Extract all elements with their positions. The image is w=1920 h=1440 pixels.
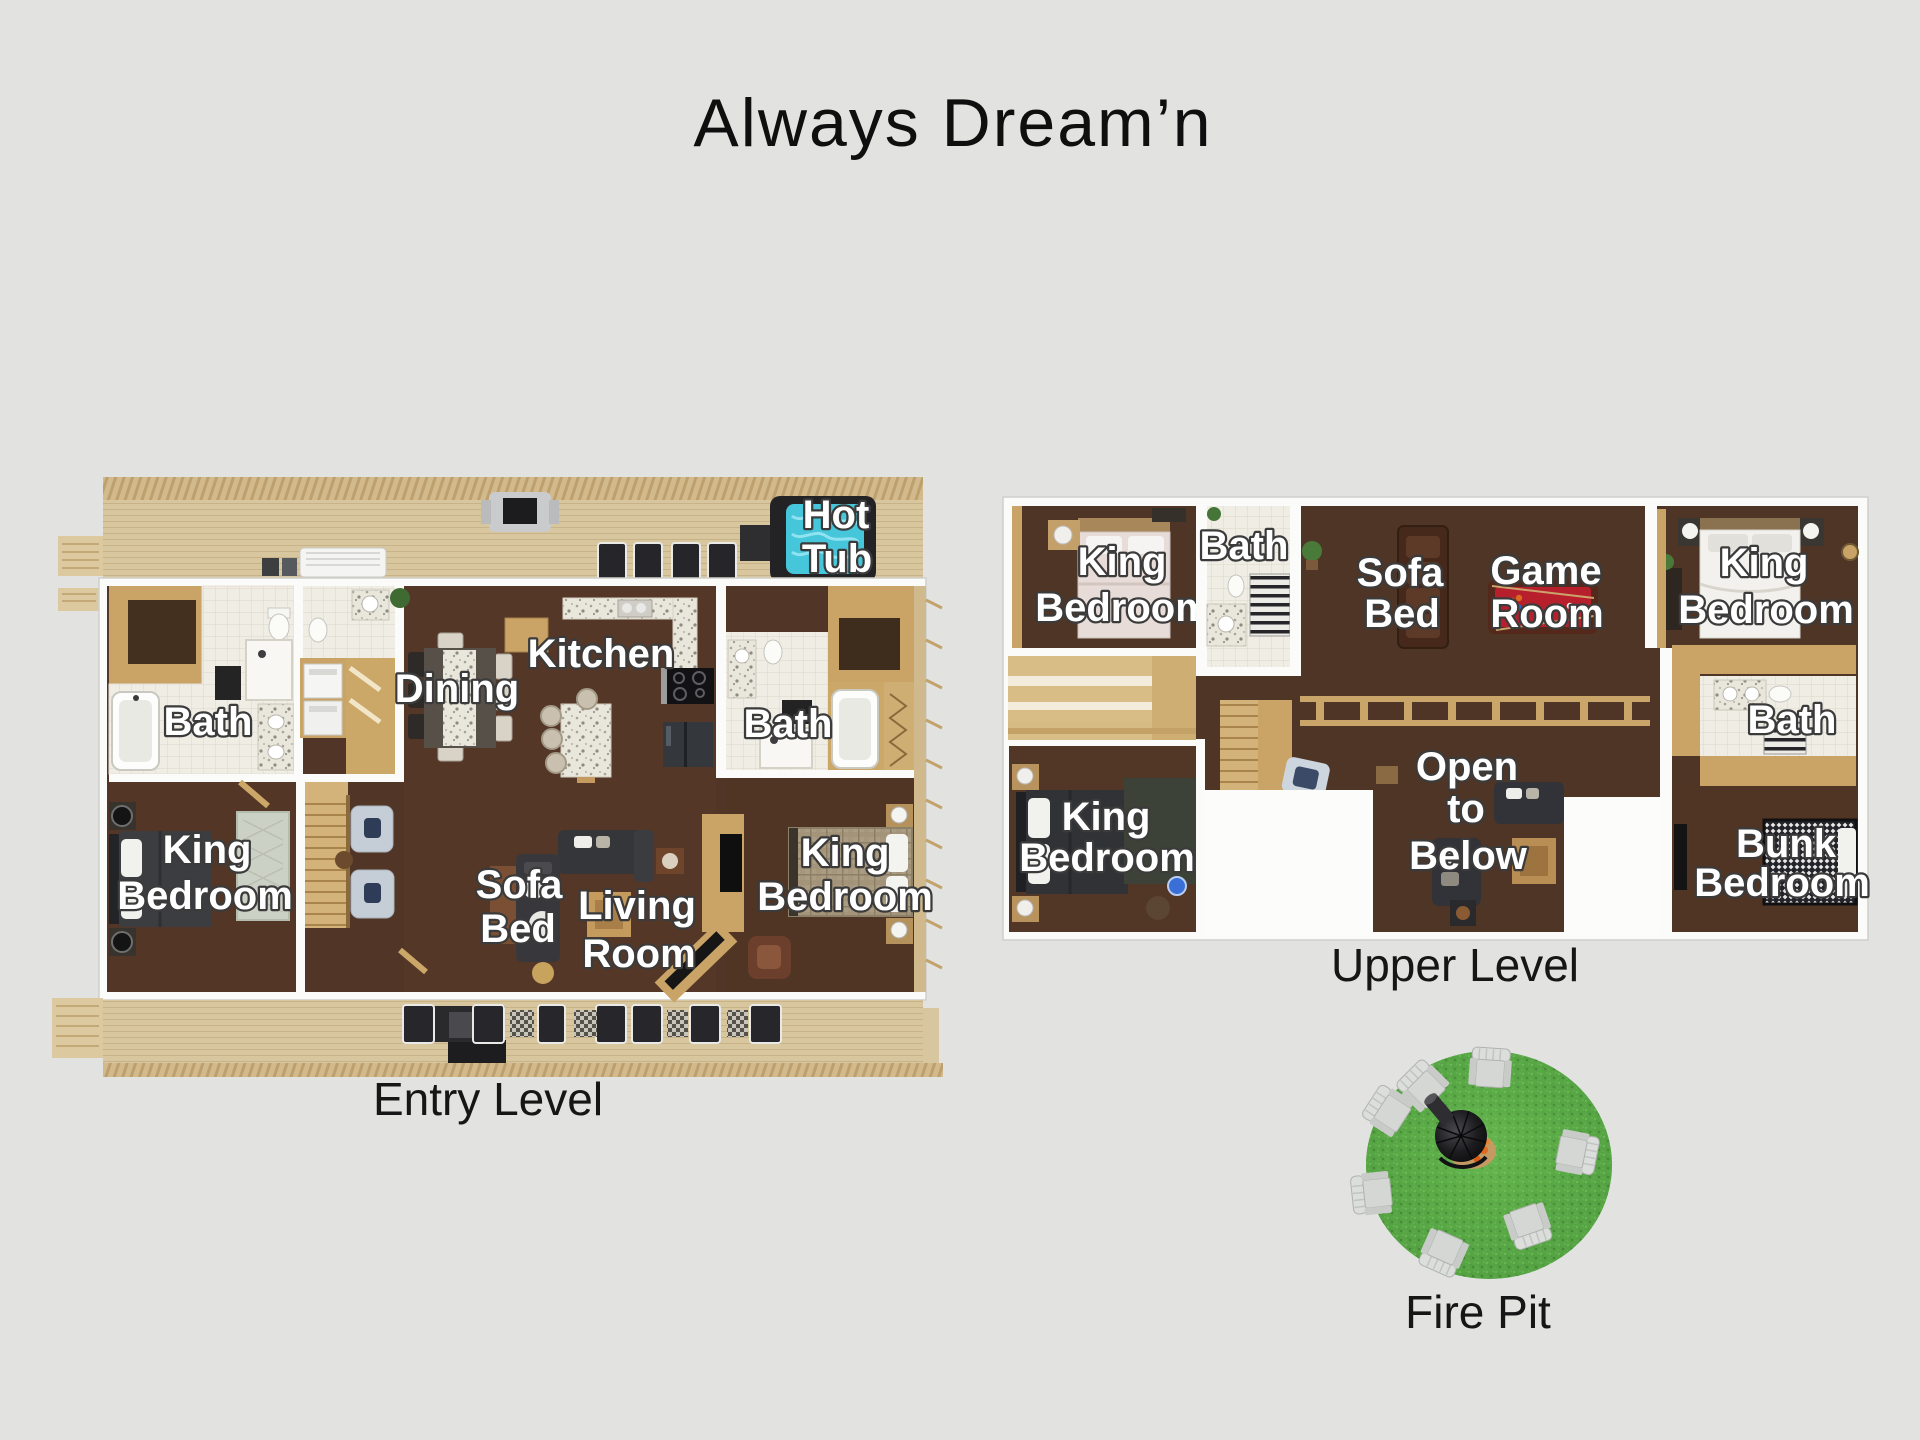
svg-text:King: King — [1078, 540, 1167, 584]
svg-text:Bunk: Bunk — [1736, 822, 1837, 866]
svg-text:Bedroom: Bedroom — [117, 874, 293, 918]
svg-text:Hot: Hot — [803, 493, 870, 537]
svg-text:Bedroom: Bedroom — [1035, 586, 1211, 630]
svg-text:Fire Pit: Fire Pit — [1405, 1286, 1551, 1338]
svg-text:Room: Room — [1490, 592, 1603, 636]
svg-text:Room: Room — [582, 932, 695, 976]
svg-text:Open: Open — [1416, 745, 1518, 789]
svg-text:Entry Level: Entry Level — [373, 1073, 603, 1125]
svg-text:Living: Living — [578, 884, 696, 928]
svg-text:Bedroom: Bedroom — [1019, 836, 1195, 880]
svg-text:Below: Below — [1409, 834, 1528, 878]
svg-text:Bedroom: Bedroom — [1678, 588, 1854, 632]
svg-text:Sofa: Sofa — [1357, 551, 1444, 595]
svg-text:Kitchen: Kitchen — [528, 632, 675, 676]
svg-text:Game: Game — [1490, 549, 1601, 593]
svg-text:Upper Level: Upper Level — [1331, 939, 1579, 991]
svg-text:Bath: Bath — [1200, 524, 1289, 568]
svg-text:Bedroom: Bedroom — [1694, 861, 1870, 905]
svg-text:Bedroom: Bedroom — [757, 875, 933, 919]
svg-text:Bed: Bed — [480, 907, 556, 951]
svg-text:Always Dream’n: Always Dream’n — [693, 85, 1212, 161]
svg-text:King: King — [1720, 541, 1809, 585]
svg-text:to: to — [1447, 787, 1485, 831]
svg-text:King: King — [1062, 795, 1151, 839]
svg-text:Bath: Bath — [164, 700, 253, 744]
svg-text:Bed: Bed — [1364, 592, 1440, 636]
svg-text:Tub: Tub — [802, 537, 872, 581]
svg-text:Bath: Bath — [744, 702, 833, 746]
svg-text:Dining: Dining — [395, 667, 519, 711]
svg-text:Bath: Bath — [1748, 698, 1837, 742]
svg-text:King: King — [163, 828, 252, 872]
svg-text:King: King — [801, 831, 890, 875]
svg-text:Sofa: Sofa — [476, 863, 563, 907]
